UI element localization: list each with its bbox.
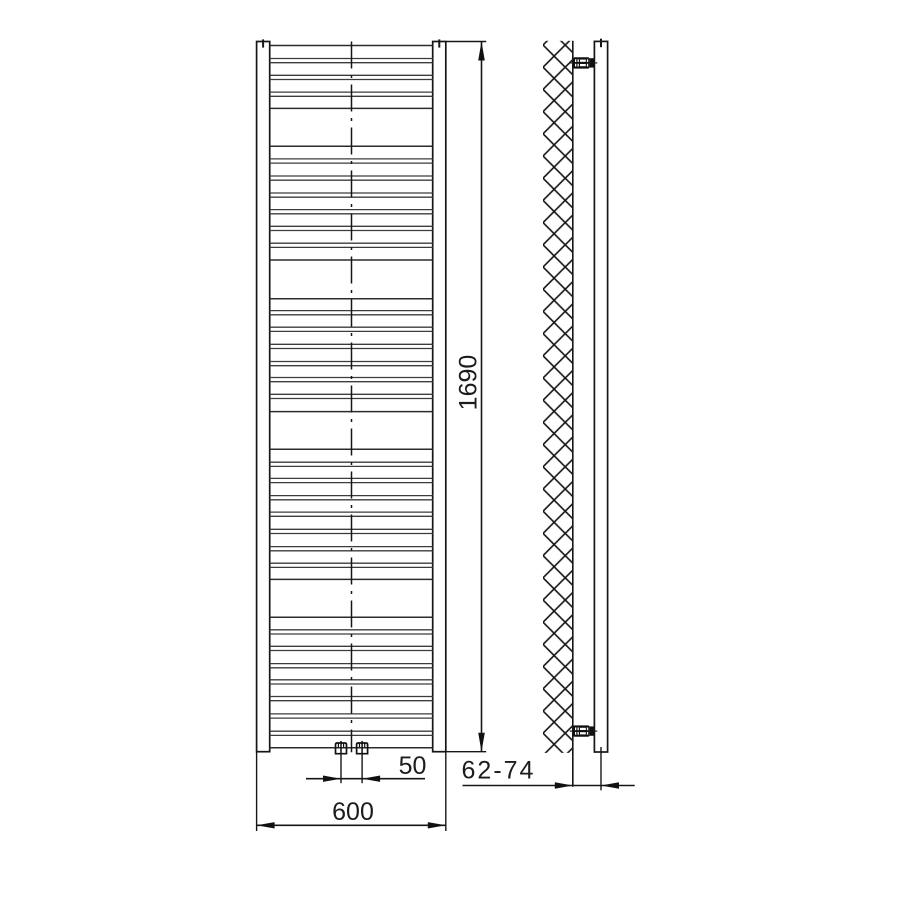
- svg-text:62-74: 62-74: [462, 757, 536, 785]
- svg-text:1690: 1690: [455, 355, 483, 411]
- svg-text:600: 600: [332, 798, 374, 826]
- svg-text:50: 50: [399, 752, 427, 780]
